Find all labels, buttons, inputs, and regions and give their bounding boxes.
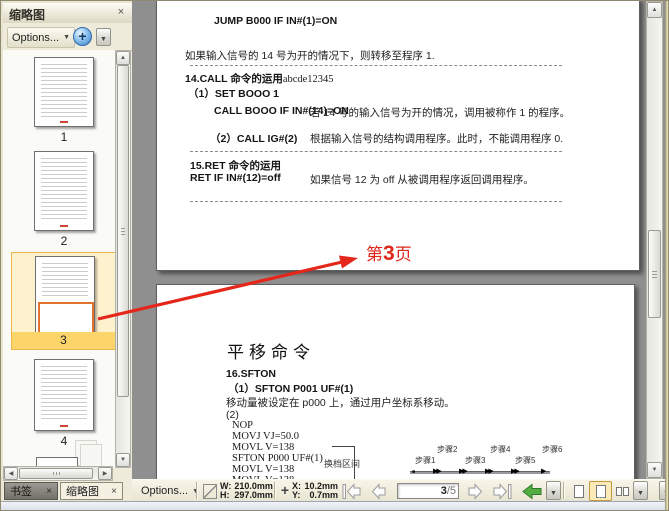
scrollbar-thumb[interactable]	[117, 65, 129, 397]
step-label: 步骤1	[415, 455, 435, 466]
document-vertical-scrollbar[interactable]: ▲ ▼	[646, 1, 663, 479]
doc-line: 若 14 号的输入信号为开的情况，调用被称作 1 的程序。	[310, 105, 570, 120]
section-title-suffix: abcde12345	[283, 74, 334, 85]
doc-line: （1）SET BOOO 1	[188, 86, 279, 101]
scroll-down-button[interactable]: ▼	[116, 453, 130, 467]
step-label: 步骤5	[515, 455, 535, 466]
thumbnail-page-2[interactable]	[34, 151, 94, 231]
doc-line: （2）CALL IG#(2)	[210, 131, 297, 146]
step-label: 步骤4	[490, 444, 510, 455]
plus-icon: +	[78, 28, 86, 44]
total-pages: /5	[447, 485, 456, 497]
separator	[563, 482, 564, 499]
separator	[274, 482, 275, 499]
close-icon[interactable]: ×	[114, 5, 128, 19]
ghost-page	[80, 444, 102, 468]
doc-line: 如果信号 12 为 off 从被调用程序返回调用程序。	[310, 172, 534, 187]
scrollbar-thumb[interactable]	[648, 230, 661, 318]
previous-view-button[interactable]	[519, 482, 545, 501]
first-page-button[interactable]	[340, 482, 364, 501]
panel-tab-bar: 书签 × 缩略图 ×	[3, 482, 132, 501]
code-line: MOVJ VJ=50.0	[232, 431, 299, 442]
thumbnail-content	[42, 263, 88, 297]
divider	[190, 65, 562, 66]
step-marker: ▶▶	[485, 468, 492, 476]
step-label: 步骤2	[437, 444, 457, 455]
tab-thumbnails[interactable]: 缩略图 ×	[60, 482, 123, 500]
scroll-down-button[interactable]: ▼	[647, 462, 662, 478]
thumbnail-label-1[interactable]: 1	[34, 130, 94, 144]
doc-line: JUMP B000 IF IN#(1)=ON	[214, 15, 337, 27]
two-page-icon	[616, 487, 622, 496]
code-line: MOVL V=138	[232, 464, 294, 475]
code-line: MOVL V=138	[232, 442, 294, 453]
step-label: 步骤3	[465, 455, 485, 466]
code-line: NOP	[232, 420, 253, 431]
document-toolbar: Options... ▼ W: 210.0mm H: 297.0mm + X: …	[132, 479, 669, 501]
chevron-down-icon: ▼	[63, 34, 70, 41]
scroll-left-button[interactable]: ◀	[4, 467, 18, 480]
scroll-up-icon: ▲	[120, 55, 126, 61]
page-number-input[interactable]: 3/5	[397, 483, 459, 499]
toolbar-options-button[interactable]: Options... ▼	[137, 482, 203, 500]
panel-horizontal-scrollbar[interactable]: ◀ ▶	[3, 466, 113, 481]
next-page-button[interactable]	[463, 482, 487, 501]
zoom-in-button[interactable]: +	[73, 27, 92, 46]
thumbnail-list: 1 2 3 4	[3, 50, 115, 468]
two-page-view-button[interactable]	[613, 481, 632, 501]
cursor-position-readout: X: 10.2mm Y: 0.7mm	[292, 482, 338, 500]
scrollbar-grip	[121, 231, 125, 232]
next-page-icon	[469, 485, 482, 499]
thumbnail-content	[41, 64, 87, 117]
previous-page-button[interactable]	[367, 482, 391, 501]
continuous-view-button[interactable]	[589, 481, 612, 501]
doc-line: 根据输入信号的结构调用程序。此时，不能调用程序 0.	[310, 131, 563, 146]
doc-line: 14.CALL 命令的运用abcde12345	[185, 71, 334, 86]
cursor-position-icon: +	[279, 482, 291, 498]
height-value: 297.0mm	[234, 491, 273, 500]
view-mode-dropdown-button[interactable]: ▼	[633, 481, 648, 500]
bracket	[332, 446, 355, 447]
panel-options-button[interactable]: Options... ▼	[7, 27, 75, 48]
section-title: 14.CALL 命令的运用	[185, 73, 283, 85]
panel-more-button[interactable]: ▼	[96, 28, 111, 46]
doc-line: 移动量被设定在 p000 上，通过用户坐标系移动。	[226, 395, 455, 410]
status-bar	[1, 501, 669, 511]
page-heading: 平移命令	[227, 338, 315, 363]
divider	[190, 151, 562, 152]
thumbnail-label-3[interactable]: 3	[12, 332, 115, 349]
doc-line: RET IF IN#(12)=off	[190, 172, 281, 184]
close-icon[interactable]: ×	[111, 486, 117, 497]
step-marker: ▶	[541, 468, 544, 476]
scroll-down-icon: ▼	[652, 467, 658, 473]
scrollbar-grip	[56, 472, 57, 475]
annotation-number: 3	[383, 242, 395, 265]
two-page-icon	[623, 487, 629, 496]
last-page-button[interactable]	[490, 482, 514, 501]
last-page-icon	[494, 485, 507, 499]
scroll-down-icon: ▼	[120, 457, 126, 463]
annotation-text: 第	[366, 245, 383, 264]
step-marker: ▶▶	[459, 468, 466, 476]
y-value: 0.7mm	[304, 491, 338, 500]
thumbnail-panel: 缩略图 × Options... ▼ + ▼ 1	[3, 3, 132, 500]
doc-line: 15.RET 命令的运用	[190, 158, 281, 173]
first-page-icon	[348, 485, 361, 499]
previous-view-icon	[523, 485, 541, 499]
thumbnail-red-mark	[60, 121, 68, 123]
scroll-up-button[interactable]: ▲	[116, 51, 130, 65]
document-page-3: JUMP B000 IF IN#(1)=ON 如果输入信号的 14 号为开的情况…	[156, 1, 640, 271]
thumbnail-red-mark	[60, 425, 68, 427]
doc-line: 如果输入信号的 14 号为开的情况下，则转移至程序 1.	[185, 48, 435, 63]
thumbnail-panel-title: 缩略图	[9, 6, 45, 23]
doc-line: 16.SFTON	[226, 368, 276, 380]
thumbnail-panel-header: 缩略图 ×	[3, 3, 132, 24]
annotation-text: 页	[395, 245, 412, 264]
page-size-icon	[203, 484, 217, 499]
tab-thumbnails-label: 缩略图	[66, 483, 99, 499]
tab-bookmarks[interactable]: 书签 ×	[4, 482, 58, 500]
step-marker: ■	[412, 468, 413, 476]
step-path-line	[410, 471, 550, 474]
single-page-icon	[574, 485, 584, 498]
height-label: H:	[220, 491, 231, 500]
thumbnail-label-2[interactable]: 2	[34, 234, 94, 248]
continuous-view-icon	[596, 485, 606, 498]
chevron-down-icon: ▼	[637, 490, 644, 497]
annotation-page-label: 第3页	[366, 240, 412, 266]
thumbnail-page-3-selected[interactable]: 3	[11, 252, 115, 350]
chevron-down-icon: ▼	[100, 36, 107, 43]
single-page-view-button[interactable]	[569, 481, 588, 501]
thumbnail-page-1[interactable]	[34, 57, 94, 127]
toolbar-options-label: Options...	[141, 485, 188, 497]
scroll-left-icon: ◀	[9, 471, 14, 477]
scroll-right-button[interactable]: ▶	[98, 467, 112, 480]
code-line: SFTON P000 UF#(1)	[232, 453, 323, 464]
page-size-readout: W: 210.0mm H: 297.0mm	[220, 482, 272, 500]
scrollbar-grip	[652, 274, 657, 275]
close-icon[interactable]: ×	[46, 486, 52, 497]
step-marker: ▶▶	[433, 468, 440, 476]
scroll-up-icon: ▲	[652, 7, 658, 13]
doc-line: （1）SFTON P001 UF#(1)	[228, 381, 353, 396]
scrollbar-thumb[interactable]	[19, 468, 93, 479]
tab-bookmarks-label: 书签	[10, 483, 32, 499]
scroll-up-button[interactable]: ▲	[647, 2, 662, 18]
panel-options-label: Options...	[12, 32, 59, 44]
pdf-viewer-window: 缩略图 × Options... ▼ + ▼ 1	[0, 0, 669, 511]
separator	[196, 482, 197, 499]
thumbnail-page-4[interactable]	[34, 359, 94, 431]
thumbnail-red-mark	[60, 225, 68, 227]
thumbnail-page-3[interactable]	[35, 256, 95, 334]
scroll-right-icon: ▶	[103, 471, 108, 477]
step-marker: ▶▶	[511, 468, 518, 476]
step-label: 步骤6	[542, 444, 562, 455]
divider	[190, 201, 562, 202]
y-label: Y:	[292, 491, 301, 500]
view-history-dropdown-button[interactable]: ▼	[546, 481, 561, 500]
bracket-label: 换档区间	[324, 457, 360, 470]
chevron-down-icon: ▼	[550, 490, 557, 497]
document-page-4: 平移命令 16.SFTON （1）SFTON P001 UF#(1) 移动量被设…	[156, 284, 635, 479]
thumbnail-content	[41, 366, 87, 421]
visible-area-box[interactable]	[38, 302, 94, 335]
window-border	[665, 1, 669, 511]
previous-page-icon	[373, 485, 386, 499]
thumbnail-panel-toolbar: Options... ▼ + ▼	[3, 23, 132, 51]
thumbnail-content	[41, 158, 87, 221]
panel-vertical-scrollbar[interactable]: ▲ ▼	[115, 50, 131, 468]
pages-stack-icon	[75, 440, 101, 468]
